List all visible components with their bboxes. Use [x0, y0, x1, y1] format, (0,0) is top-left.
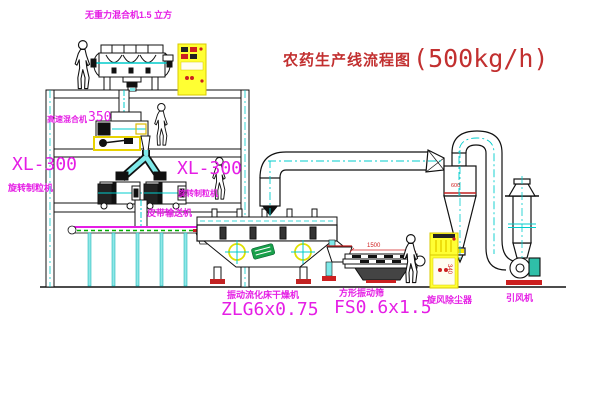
label-high-speed-mixer: 高速混合机 350 [47, 110, 111, 125]
title-capacity: (500kg/h) [413, 44, 548, 73]
dimension-cyclone: 600 [451, 184, 460, 190]
high-speed-mixer-name: 高速混合机 [47, 114, 87, 125]
label-granulator-left-name: 旋转制粒机 [8, 184, 53, 193]
dryer-exhaust-duct [260, 150, 444, 216]
label-belt-conveyor: 皮带输送机 [147, 209, 192, 218]
belt-conveyor-machine [68, 226, 210, 286]
control-cabinet-top [178, 44, 206, 95]
gravity-free-mixer-machine [91, 45, 173, 91]
label-granulator-right-name: 旋转制粒机 [178, 190, 218, 198]
exhaust-stack-machine [505, 176, 539, 260]
diagram-title: 农药生产线流程图 (500kg/h) [283, 44, 548, 73]
person-figure-second-floor [155, 104, 167, 146]
granulator-drop-pipe [135, 200, 147, 228]
label-fan: 引风机 [506, 294, 533, 303]
label-granulator-right-model: XL-300 [177, 160, 242, 178]
pesticide-line-flow-diagram: 无重力混合机1.5 立方 农药生产线流程图 (500kg/h) 高速混合机 35… [0, 0, 600, 403]
dimension-sieve-length: 1500 [367, 243, 380, 249]
dimension-sieve-height: 340 [446, 264, 452, 274]
induced-draft-fan-machine [506, 258, 542, 285]
high-speed-mixer-size: 350 [88, 110, 111, 125]
label-dryer-model: ZLG6x0.75 [221, 301, 319, 319]
label-cyclone: 旋风除尘器 [427, 296, 472, 305]
person-figure-ground [403, 235, 417, 283]
person-figure-top-floor [75, 41, 89, 89]
label-granulator-left-model: XL-300 [12, 156, 77, 174]
mixer-drop-pipe [119, 90, 129, 114]
title-text: 农药生产线流程图 [283, 49, 411, 70]
label-sieve-model: FS0.6x1.5 [334, 299, 432, 317]
control-cabinet-right [430, 233, 458, 288]
label-gravity-mixer: 无重力混合机1.5 立方 [85, 11, 172, 20]
